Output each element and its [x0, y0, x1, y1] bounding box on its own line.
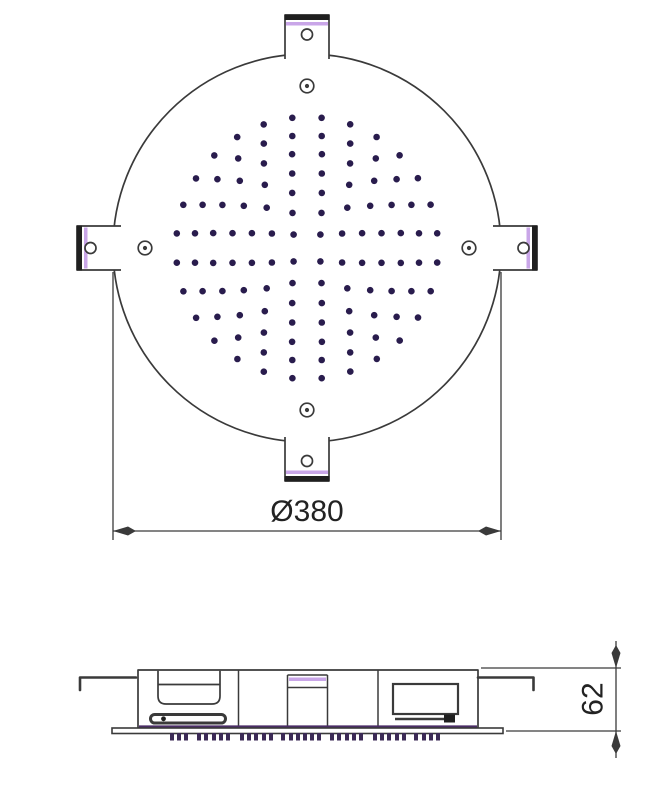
nozzle-tooth — [170, 733, 174, 741]
nozzle-dot — [229, 260, 236, 267]
nozzle-dot — [416, 259, 423, 266]
nozzle-dot — [318, 133, 325, 140]
nozzle-dot — [289, 319, 296, 326]
tab-edge-bar — [285, 476, 330, 482]
arrowhead-right — [478, 527, 501, 536]
nozzle-dot — [344, 204, 351, 211]
tab-accent-line — [286, 22, 328, 26]
nozzle-dot — [263, 204, 270, 211]
nozzle-tooth — [345, 733, 349, 741]
inlet-column — [288, 675, 328, 728]
arrowhead-left — [113, 527, 136, 536]
nozzle-dot — [319, 190, 326, 197]
top-view-plan — [77, 15, 538, 482]
nozzle-tooth — [177, 733, 181, 741]
nozzle-tooth — [373, 733, 377, 741]
nozzle-dot — [371, 312, 378, 319]
nozzle-tooth — [317, 733, 321, 741]
nozzle-dot — [388, 202, 395, 209]
nozzle-dot — [261, 368, 268, 375]
nozzle-dot — [319, 170, 326, 177]
screw-hole-right — [462, 241, 476, 255]
nozzle-dot — [260, 121, 267, 128]
nozzle-tooth — [436, 733, 440, 741]
nozzle-dot — [374, 356, 381, 363]
nozzle-tooth — [281, 733, 285, 741]
nozzle-dot — [290, 231, 297, 238]
nozzle-dot — [234, 356, 241, 363]
nozzle-dot — [241, 287, 248, 294]
mounting-hook-left — [80, 678, 136, 691]
nozzle-dot — [378, 260, 385, 267]
nozzle-dot — [261, 329, 268, 336]
nozzle-dot — [319, 300, 326, 307]
nozzle-dot — [219, 202, 226, 209]
nozzle-dot — [237, 178, 244, 185]
nozzle-tooth — [352, 733, 356, 741]
nozzle-dot — [290, 258, 297, 265]
nozzle-dot — [229, 230, 236, 237]
nozzle-dot — [211, 152, 218, 159]
nozzle-dot — [262, 182, 269, 189]
nozzle-dot — [192, 230, 199, 237]
nozzle-dot — [261, 349, 268, 356]
mounting-tab-top — [285, 15, 330, 60]
nozzle-dot — [396, 152, 403, 159]
nozzle-dot — [193, 315, 200, 322]
nozzle-dot — [199, 202, 206, 209]
tab-accent-line — [286, 471, 328, 475]
nozzle-tooth — [429, 733, 433, 741]
nozzle-tooth — [254, 733, 258, 741]
nozzle-dot — [318, 357, 325, 364]
nozzle-dot — [347, 349, 354, 356]
nozzle-dot — [373, 155, 380, 162]
nozzle-dot — [415, 314, 422, 321]
nozzle-dot — [261, 140, 268, 147]
screw-hole-bottom — [300, 403, 314, 417]
tab-hole — [518, 243, 529, 254]
nozzle-tooth — [269, 733, 273, 741]
nozzle-dot — [373, 134, 380, 141]
nozzle-dot — [347, 140, 354, 147]
nozzle-tooth — [262, 733, 266, 741]
inlet-accent-band — [289, 678, 326, 682]
nozzle-dot — [317, 231, 324, 238]
nozzle-dot — [214, 176, 221, 183]
nozzle-dot — [359, 230, 366, 237]
nozzle-tooth — [197, 733, 201, 741]
nozzle-dot — [408, 202, 415, 209]
nozzle-tooth — [184, 733, 188, 741]
nozzle-dot — [398, 260, 405, 267]
nozzle-tooth — [212, 733, 216, 741]
bracket-nub — [444, 715, 455, 723]
tab-hole — [85, 243, 96, 254]
nozzle-dot — [289, 339, 296, 346]
nozzle-dot — [318, 210, 325, 217]
nozzle-dot — [249, 260, 256, 267]
mounting-tab-bottom — [285, 437, 330, 482]
nozzle-dot — [261, 160, 268, 167]
side-view-profile — [80, 670, 534, 741]
nozzle-dot — [393, 314, 400, 321]
tab-edge-bar — [77, 226, 83, 271]
nozzle-dot — [367, 203, 374, 210]
screw-hole-left — [138, 241, 152, 255]
nozzle-dot — [234, 134, 241, 141]
slot-detail — [151, 715, 226, 724]
nozzle-dot — [235, 155, 242, 162]
mounting-tab-left — [77, 226, 122, 271]
nozzle-dot — [289, 300, 296, 307]
nozzle-dot — [174, 230, 181, 237]
tab-hole — [302, 29, 313, 40]
nozzle-dot — [211, 337, 218, 344]
screw-hole-top — [300, 79, 314, 93]
nozzle-dot — [289, 115, 296, 122]
nozzle-tooth — [337, 733, 341, 741]
tab-body — [493, 226, 537, 270]
tab-edge-bar — [532, 226, 538, 271]
nozzle-dot — [241, 203, 248, 210]
slot-pin — [161, 716, 166, 721]
mounting-hook-right — [478, 678, 534, 691]
nozzle-dot — [180, 202, 187, 209]
nozzle-dot — [210, 230, 217, 237]
nozzle-tooth — [303, 733, 307, 741]
nozzle-dot — [371, 178, 378, 185]
nozzle-dot — [346, 182, 353, 189]
nozzle-dot — [318, 115, 325, 122]
nozzle-dot — [289, 151, 296, 158]
nozzle-dot — [318, 375, 325, 382]
nozzle-dot — [319, 151, 326, 158]
nozzle-dot — [289, 190, 296, 197]
tab-hole — [302, 456, 313, 467]
nozzle-dot — [289, 357, 296, 364]
nozzle-dot — [210, 260, 217, 267]
tab-edge-bar — [285, 15, 330, 21]
nozzle-dot — [415, 175, 422, 182]
nozzle-dot — [193, 175, 200, 182]
nozzle-dot — [319, 339, 326, 346]
nozzle-dot — [262, 308, 269, 315]
nozzle-dot — [249, 230, 256, 237]
nozzle-tooth — [204, 733, 208, 741]
nozzle-tooth — [330, 733, 334, 741]
nozzle-tooth — [402, 733, 406, 741]
nozzle-dot — [269, 230, 276, 237]
nozzle-dot — [289, 210, 296, 217]
height-label: 62 — [577, 682, 610, 715]
nozzle-dot — [263, 285, 270, 292]
nozzle-tooth — [296, 733, 300, 741]
nozzle-dot — [359, 260, 366, 267]
nozzle-dot — [214, 314, 221, 321]
nozzle-tooth — [380, 733, 384, 741]
face-plate — [112, 728, 503, 734]
nozzle-tooth — [226, 733, 230, 741]
nozzle-dot — [180, 288, 187, 295]
tab-body — [77, 226, 121, 270]
nozzle-dot — [289, 133, 296, 140]
nozzle-dot — [393, 176, 400, 183]
nozzle-dot — [339, 230, 346, 237]
nozzle-dot — [378, 230, 385, 237]
nozzle-dot — [398, 230, 405, 237]
arrowhead-bottom — [612, 731, 621, 754]
nozzle-dot — [235, 334, 242, 341]
nozzle-tooth — [395, 733, 399, 741]
nozzle-dot — [347, 121, 354, 128]
nozzle-dot — [416, 230, 423, 237]
nozzle-tooth — [219, 733, 223, 741]
nozzle-dot — [269, 259, 276, 266]
nozzle-dot — [427, 201, 434, 208]
nozzle-dot — [344, 285, 351, 292]
nozzle-tooth — [359, 733, 363, 741]
nozzle-dot — [388, 288, 395, 295]
nozzle-dot — [318, 280, 325, 287]
nozzle-dot — [434, 230, 441, 237]
drawing-canvas: Ø380 — [0, 0, 661, 800]
nozzle-dot — [373, 334, 380, 341]
nozzle-tooth — [422, 733, 426, 741]
nozzle-tooth — [240, 733, 244, 741]
nozzle-dot — [434, 259, 441, 266]
nozzle-dot — [219, 288, 226, 295]
arrowhead-top — [612, 645, 621, 668]
nozzle-tooth — [310, 733, 314, 741]
nozzle-dot — [427, 288, 434, 295]
shower-plate-outline — [113, 54, 501, 442]
diameter-label: Ø380 — [270, 495, 343, 528]
nozzle-dot — [408, 288, 415, 295]
nozzle-dot — [347, 329, 354, 336]
nozzle-tooth — [387, 733, 391, 741]
nozzle-dot — [192, 259, 199, 266]
nozzle-dot — [289, 280, 296, 287]
nozzle-dot — [174, 259, 181, 266]
nozzle-dot — [339, 259, 346, 266]
nozzle-dot — [199, 288, 206, 295]
nozzle-dot — [347, 368, 354, 375]
nozzle-tooth — [247, 733, 251, 741]
nozzle-tooth — [414, 733, 418, 741]
nozzle-dot — [347, 160, 354, 167]
nozzle-dot — [237, 312, 244, 319]
height-dimension: 62 — [481, 641, 621, 758]
nozzle-dot — [319, 319, 326, 326]
nozzle-dot — [289, 170, 296, 177]
nozzle-dot — [317, 258, 324, 265]
nozzle-dot — [289, 375, 296, 382]
nozzle-tooth — [289, 733, 293, 741]
nozzle-dot — [396, 337, 403, 344]
nozzle-dot — [346, 308, 353, 315]
mounting-tab-right — [493, 226, 538, 271]
drawing-page: Ø380 — [0, 0, 661, 800]
nozzle-dot — [367, 287, 374, 294]
